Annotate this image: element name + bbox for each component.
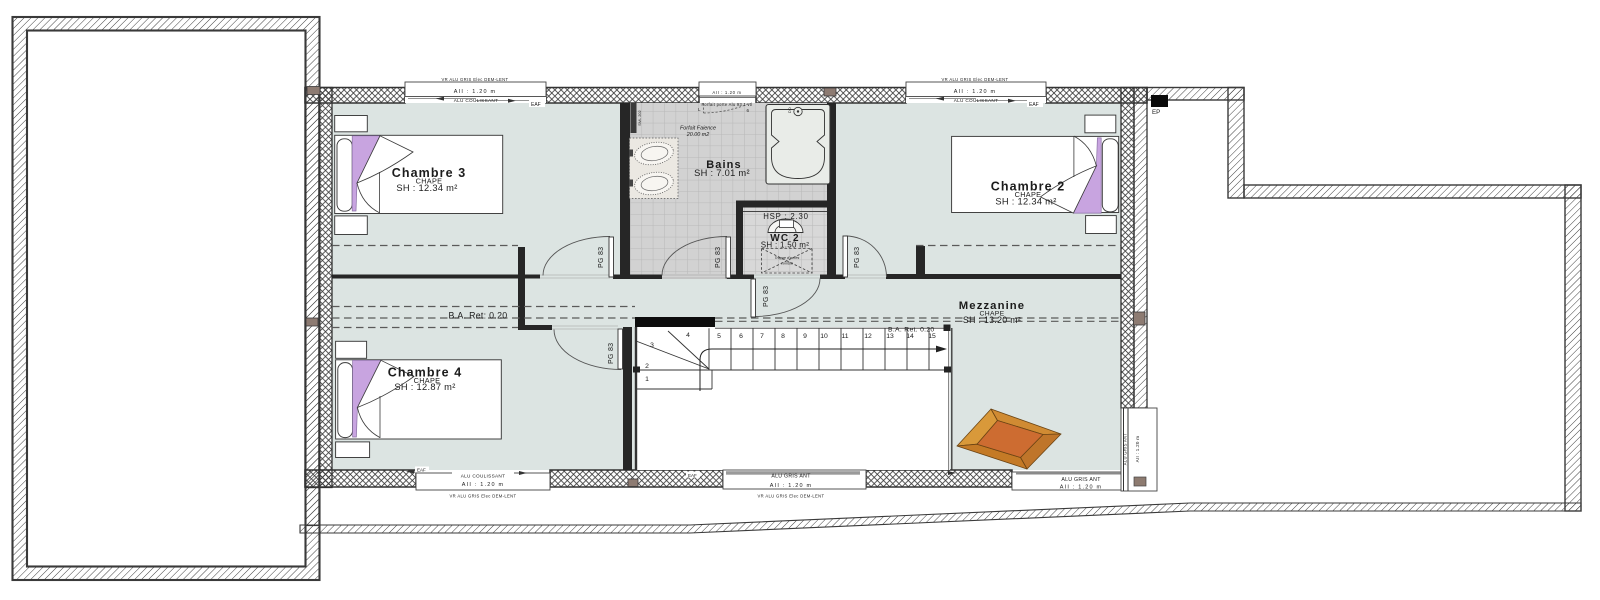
svg-text:PG 83: PG 83 [608, 343, 615, 364]
svg-text:EAF: EAF [688, 473, 697, 478]
svg-text:AII : 1.20 m: AII : 1.20 m [454, 89, 497, 95]
svg-text:HSP : 2.30: HSP : 2.30 [763, 212, 809, 221]
svg-text:PG 83: PG 83 [715, 247, 722, 268]
svg-text:AII : 1.20 m: AII : 1.20 m [462, 482, 505, 488]
svg-text:11: 11 [841, 333, 848, 340]
svg-text:EP: EP [1152, 109, 1160, 116]
svg-text:SH : 7.01 m²: SH : 7.01 m² [694, 168, 750, 178]
svg-text:AII : 1.20 m: AII : 1.20 m [770, 483, 813, 489]
svg-text:DO: DO [788, 107, 792, 113]
svg-text:12: 12 [864, 333, 872, 340]
svg-text:AII : 1.20 m: AII : 1.20 m [1060, 485, 1103, 491]
svg-text:AII : 1.20 m: AII : 1.20 m [1135, 436, 1140, 463]
svg-text:VR ALU GRIS Elec DEM-LENT: VR ALU GRIS Elec DEM-LENT [942, 77, 1009, 82]
svg-text:ALU COULISSANT: ALU COULISSANT [454, 98, 499, 103]
svg-text:14: 14 [906, 333, 914, 340]
svg-text:Trappe d'accès: Trappe d'accès [775, 256, 800, 260]
svg-text:SH : 13.20 m²: SH : 13.20 m² [963, 315, 1021, 325]
svg-text:PG 83: PG 83 [763, 286, 770, 307]
svg-text:AII : 1.20 m: AII : 1.20 m [954, 89, 997, 95]
svg-text:5: 5 [717, 333, 721, 340]
svg-text:20.00 m2: 20.00 m2 [686, 132, 709, 138]
svg-text:ALU GRIS ANT: ALU GRIS ANT [771, 474, 811, 480]
svg-text:SH : 12.34 m²: SH : 12.34 m² [396, 183, 457, 193]
svg-text:ALU GRIS ANT: ALU GRIS ANT [1061, 477, 1101, 483]
svg-text:10: 10 [820, 333, 828, 340]
svg-text:13: 13 [886, 333, 894, 340]
svg-text:AII : 1.20 m: AII : 1.20 m [712, 90, 741, 95]
svg-text:7: 7 [760, 333, 764, 340]
svg-text:SML 202: SML 202 [637, 110, 642, 125]
svg-text:SH : 12.34 m²: SH : 12.34 m² [995, 196, 1056, 206]
svg-text:VR ALU GRIS Elec DEM-LENT: VR ALU GRIS Elec DEM-LENT [758, 494, 825, 499]
svg-text:EAF: EAF [1029, 102, 1039, 108]
svg-text:EAF: EAF [417, 468, 426, 473]
svg-text:Forfait porte Alu 93 1 vtl: Forfait porte Alu 93 1 vtl [701, 102, 752, 107]
svg-text:SH : 1.50 m²: SH : 1.50 m² [761, 241, 810, 250]
svg-text:ALU GRIS ANT: ALU GRIS ANT [1123, 433, 1128, 466]
svg-text:VR ALU GRIS Elec DEM-LENT: VR ALU GRIS Elec DEM-LENT [442, 77, 509, 82]
svg-text:8: 8 [781, 333, 785, 340]
svg-text:15: 15 [928, 333, 936, 340]
svg-text:9: 9 [803, 333, 807, 340]
svg-text:comble: comble [781, 262, 793, 266]
svg-text:6: 6 [739, 333, 743, 340]
svg-text:B.A. Ret: 0.20: B.A. Ret: 0.20 [449, 311, 508, 321]
svg-text:3: 3 [650, 342, 654, 349]
svg-text:ALU COULISSANT: ALU COULISSANT [954, 98, 999, 103]
svg-text:4: 4 [686, 332, 690, 339]
svg-text:EAF: EAF [531, 102, 541, 108]
svg-text:2: 2 [645, 363, 649, 370]
svg-text:Forfait Faience: Forfait Faience [680, 126, 716, 132]
svg-text:ALU COULISSANT: ALU COULISSANT [461, 473, 506, 478]
svg-text:1: 1 [645, 376, 649, 383]
svg-text:PG 83: PG 83 [854, 247, 861, 268]
svg-text:VR ALU GRIS Elec DEM-LENT: VR ALU GRIS Elec DEM-LENT [450, 494, 517, 499]
svg-text:SH : 12.87 m²: SH : 12.87 m² [394, 382, 455, 392]
svg-text:PG 83: PG 83 [598, 247, 605, 268]
svg-text:B.A. Ret. 0.20: B.A. Ret. 0.20 [888, 327, 935, 334]
